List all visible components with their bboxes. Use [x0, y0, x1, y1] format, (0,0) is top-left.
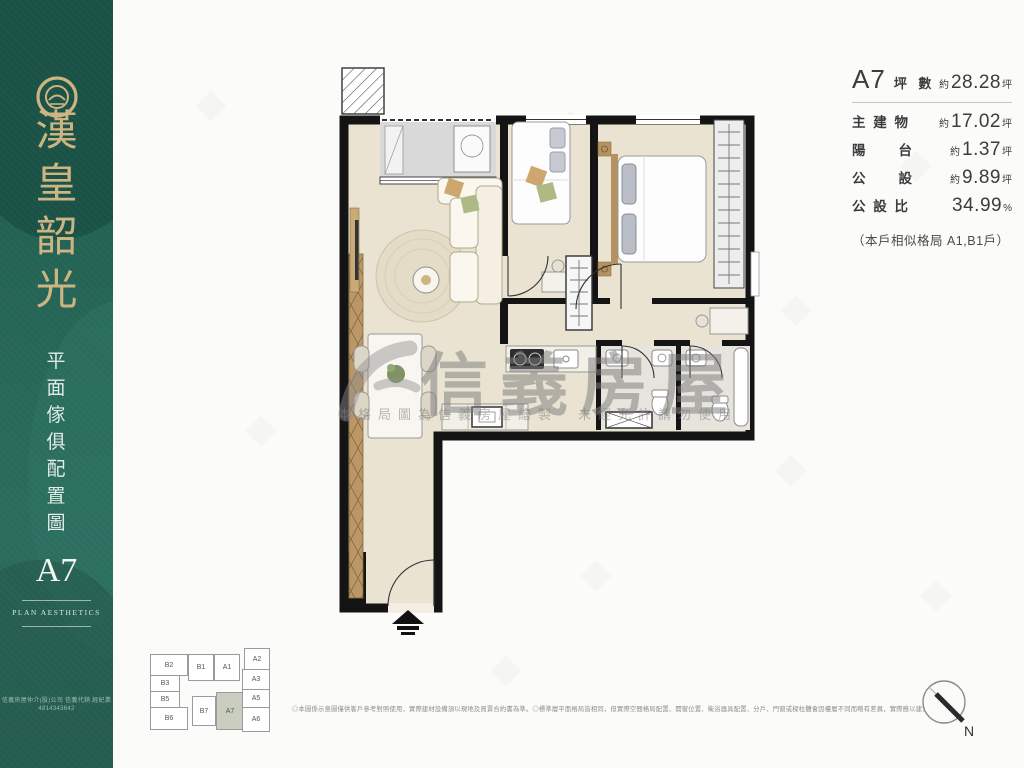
subtitle-char: 傢 [0, 402, 113, 429]
pillow [622, 214, 636, 254]
chair [552, 260, 564, 272]
floor-plan [330, 58, 760, 636]
unit-info-panel: A7 坪 數 約28.28坪 主 建 物 約17.02坪 陽 台 約1.37坪 … [852, 64, 1012, 249]
info-row-public-ratio: 公 設 比 34.99% [852, 195, 1012, 217]
stove [510, 349, 544, 369]
dining-table [368, 334, 422, 438]
plan-subtitle-vertical: 平 面 傢 俱 配 置 圖 [0, 348, 113, 537]
info-unit-label: A7 [852, 64, 886, 95]
pillow [622, 164, 636, 204]
tv [355, 220, 359, 280]
approx-prefix: 約 [950, 175, 960, 186]
info-row-public-area: 公 設 約9.89坪 [852, 167, 1012, 189]
title-char: 韶 [0, 212, 113, 265]
keyplan-unit-a1: A1 [214, 654, 240, 681]
row-label: 主 建 物 [852, 111, 910, 131]
keyplan-unit-b3: B3 [150, 675, 180, 692]
row-label: 公 設 比 [852, 195, 910, 215]
agency-number: 4814343642 [0, 705, 113, 713]
bg-watermark-tile [775, 455, 806, 486]
keyplan: B2 B3 B5 B6 B1 A1 B7 A7 A2 A3 A5 A6 [150, 648, 270, 734]
value: 1.37 [962, 139, 1001, 160]
keyplan-unit-a3: A3 [242, 669, 270, 690]
sofa-seat [450, 252, 478, 302]
sidebar-unit-tagline: PLAN AESTHETICS [0, 608, 113, 617]
shaft-hatched [342, 68, 384, 114]
agency-info: 信義房屋仲介(股)公司 信義代銷 經紀業 [0, 697, 113, 705]
unit: 坪 [1002, 147, 1012, 158]
subtitle-char: 面 [0, 375, 113, 402]
nightstand [598, 142, 611, 156]
info-header: A7 坪 數 約28.28坪 [852, 64, 1012, 95]
sink [606, 350, 628, 366]
info-row-balcony: 陽 台 約1.37坪 [852, 139, 1012, 161]
cushion [461, 195, 480, 214]
kitchen-sink [554, 350, 578, 368]
subtitle-char: 平 [0, 348, 113, 375]
compass-north-label: N [964, 723, 974, 739]
value: 34.99 [952, 195, 1002, 216]
brand-sidebar: 漢 皇 韶 光 平 面 傢 俱 配 置 圖 A7 PLAN AESTHETICS… [0, 0, 113, 768]
pillow [550, 128, 565, 148]
approx-prefix: 約 [950, 147, 960, 158]
keyplan-unit-a7-highlighted: A7 [216, 692, 244, 730]
service-platform [751, 252, 759, 296]
balcony [380, 115, 496, 184]
keyplan-unit-a5: A5 [242, 689, 270, 708]
bg-watermark-tile [490, 655, 521, 686]
row-value: 約9.89坪 [950, 167, 1012, 189]
subtitle-char: 配 [0, 456, 113, 483]
dining-chair [354, 392, 369, 418]
title-char: 光 [0, 265, 113, 318]
approx-prefix: 約 [939, 80, 949, 91]
stool [696, 315, 708, 327]
headboard [611, 154, 618, 264]
unit: % [1003, 203, 1012, 214]
value: 17.02 [951, 111, 1001, 132]
divider [22, 600, 91, 601]
unit: 坪 [1002, 175, 1012, 186]
sidebar-unit-label: A7 [0, 552, 113, 590]
row-value: 約17.02坪 [939, 111, 1012, 133]
bg-watermark-tile [245, 415, 276, 446]
title-char: 漢 [0, 106, 113, 159]
similar-layout-note: （本戶相似格局 A1,B1戶） [852, 230, 1012, 249]
total-area-value: 28.28 [951, 72, 1001, 93]
subtitle-char: 圖 [0, 510, 113, 537]
sink [686, 350, 706, 366]
dining-chair [421, 392, 436, 418]
info-header-value: 約28.28坪 [939, 72, 1012, 94]
sofa-back [476, 186, 502, 304]
floorplan-poster: { "sidebar": { "title_chars": ["漢", "皇",… [0, 0, 1024, 768]
divider [22, 626, 91, 627]
row-label: 公 設 [852, 167, 914, 187]
keyplan-unit-b7: B7 [192, 696, 216, 726]
row-value: 約1.37坪 [950, 139, 1012, 161]
bg-watermark-tile [920, 580, 951, 611]
entry-arrow-icon [392, 610, 424, 635]
keyplan-unit-b5: B5 [150, 691, 180, 708]
unit: 坪 [1002, 119, 1012, 130]
info-header-label: 坪 數 [894, 73, 936, 92]
ac-unit [454, 126, 490, 172]
pillow [550, 152, 565, 172]
title-char: 皇 [0, 159, 113, 212]
subtitle-char: 置 [0, 483, 113, 510]
row-label: 陽 台 [852, 139, 914, 159]
appliance [472, 407, 502, 427]
sidebar-footer: 信義房屋仲介(股)公司 信義代銷 經紀業 4814343642 [0, 697, 113, 713]
keyplan-unit-b1: B1 [188, 654, 214, 681]
entry-cabinet [349, 254, 363, 598]
approx-prefix: 約 [939, 119, 949, 130]
compass-icon: N [918, 676, 982, 748]
value: 9.89 [962, 167, 1001, 188]
row-value: 34.99% [950, 195, 1012, 217]
divider [852, 102, 1012, 103]
legal-disclaimer: ◎本圖係示意圖僅供客戶參考對照使用，實際建材設備須以現地及買賣合約書為準。◎標準… [292, 704, 924, 713]
sink [652, 350, 672, 366]
info-row-main-building: 主 建 物 約17.02坪 [852, 111, 1012, 133]
keyplan-unit-a6: A6 [242, 707, 270, 732]
dining-chair [354, 346, 369, 372]
keyplan-unit-a2: A2 [244, 648, 270, 670]
keyplan-unit-b2: B2 [150, 654, 188, 676]
vanity-desk [710, 308, 748, 334]
bathtub [734, 348, 748, 426]
keyplan-unit-b6: B6 [150, 707, 188, 730]
bg-watermark-tile [195, 90, 226, 121]
dining-chair [421, 346, 436, 372]
area-unit: 坪 [1002, 80, 1012, 91]
bathroom-1 [601, 346, 676, 430]
subtitle-char: 俱 [0, 429, 113, 456]
project-title-vertical: 漢 皇 韶 光 [0, 106, 113, 318]
bg-watermark-tile [780, 295, 811, 326]
